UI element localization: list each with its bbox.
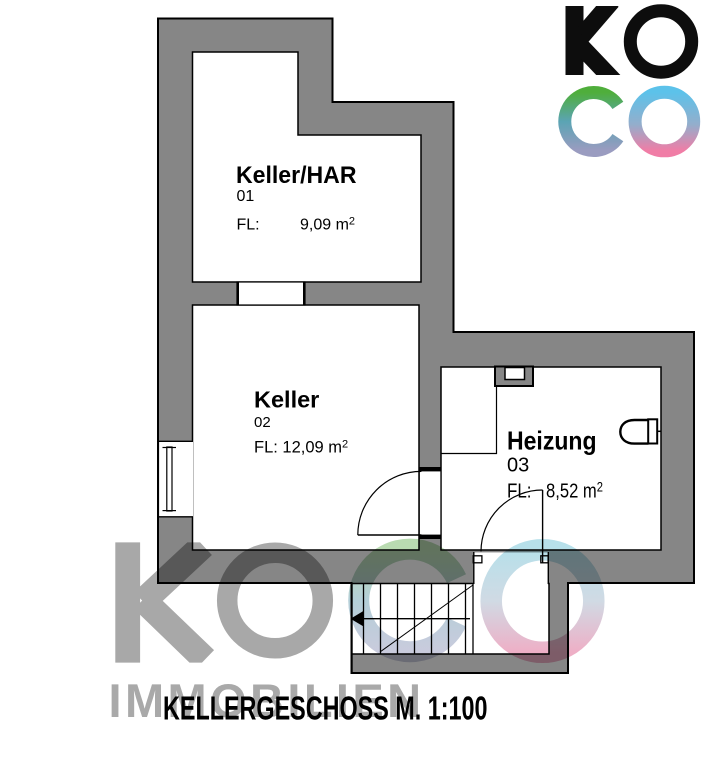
svg-text:FL:: FL: — [237, 217, 260, 234]
svg-text:FL: 12,09 m2: FL: 12,09 m2 — [254, 439, 348, 457]
svg-text:03: 03 — [507, 455, 529, 477]
svg-text:Keller/HAR: Keller/HAR — [236, 162, 357, 189]
svg-text:9,09 m2: 9,09 m2 — [300, 216, 355, 234]
svg-text:Heizung: Heizung — [507, 426, 597, 456]
svg-text:02: 02 — [254, 414, 271, 431]
svg-text:KELLERGESCHOSS M. 1:100: KELLERGESCHOSS M. 1:100 — [163, 691, 487, 728]
svg-text:FL:: FL: — [507, 481, 532, 503]
svg-text:Keller: Keller — [254, 387, 319, 413]
svg-text:8,52 m2: 8,52 m2 — [546, 480, 603, 503]
svg-text:01: 01 — [237, 188, 255, 205]
